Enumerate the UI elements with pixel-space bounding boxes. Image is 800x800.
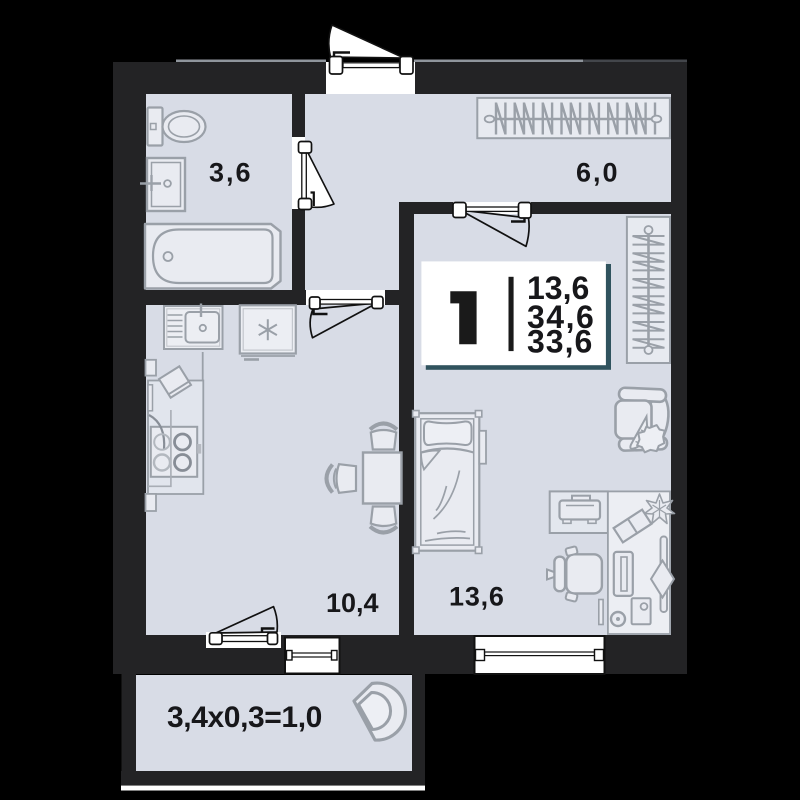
svg-text:10,4: 10,4 [326, 588, 379, 618]
svg-text:3,6: 3,6 [209, 158, 253, 188]
svg-text:6,0: 6,0 [576, 158, 620, 188]
svg-text:33,6: 33,6 [527, 323, 593, 359]
svg-text:13,6: 13,6 [449, 582, 505, 612]
svg-text:3,4x0,3=1,0: 3,4x0,3=1,0 [167, 701, 322, 734]
